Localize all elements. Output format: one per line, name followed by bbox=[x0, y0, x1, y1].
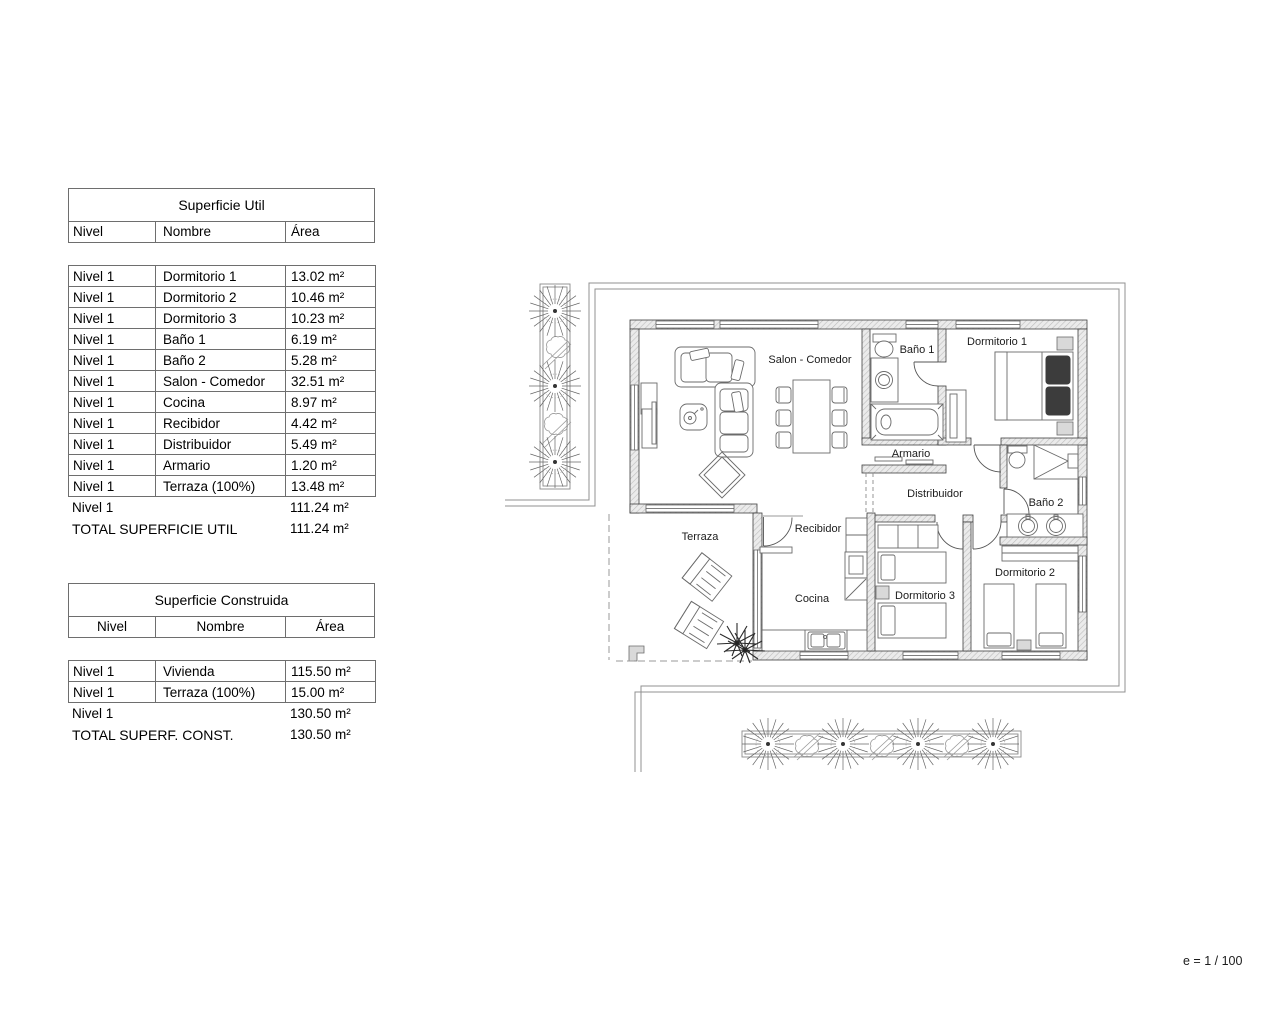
plan-sheet: Superficie Util Nivel Nombre Área Nivel … bbox=[0, 0, 1280, 1024]
label-cocina: Cocina bbox=[795, 593, 830, 605]
label-dormitorio3: Dormitorio 3 bbox=[895, 590, 955, 602]
hedge-left bbox=[529, 284, 581, 489]
bedroom3-furniture bbox=[876, 525, 946, 638]
single-bed bbox=[984, 584, 1014, 648]
terrace-chair bbox=[682, 553, 732, 602]
tree-icon bbox=[529, 285, 581, 337]
dining-set bbox=[776, 380, 847, 453]
rug bbox=[699, 452, 745, 498]
hall-shelf bbox=[760, 547, 792, 553]
label-terraza: Terraza bbox=[682, 531, 720, 543]
wardrobe bbox=[1002, 546, 1078, 561]
double-bed bbox=[946, 337, 1073, 442]
label-recibidor: Recibidor bbox=[795, 523, 842, 535]
terrace-pillar bbox=[629, 646, 644, 661]
shrub-icon bbox=[545, 413, 568, 434]
terrace-chair bbox=[674, 601, 723, 648]
wardrobe bbox=[878, 525, 938, 548]
floor-plan: Salon - Comedor Baño 1 Dormitorio 1 Arma… bbox=[0, 0, 1280, 1024]
shrub-icon bbox=[796, 735, 819, 756]
tree-icon bbox=[892, 718, 944, 770]
single-bed bbox=[1036, 584, 1066, 648]
label-dormitorio2: Dormitorio 2 bbox=[995, 567, 1055, 579]
label-distribuidor: Distribuidor bbox=[907, 488, 963, 500]
label-dormitorio1: Dormitorio 1 bbox=[967, 336, 1027, 348]
nightstand bbox=[1057, 337, 1073, 350]
shrub-icon bbox=[946, 735, 969, 756]
nightstand bbox=[1057, 422, 1073, 435]
label-salon: Salon - Comedor bbox=[768, 354, 851, 366]
sofa bbox=[675, 347, 755, 457]
bedroom2-furniture bbox=[984, 546, 1078, 650]
single-bed bbox=[878, 603, 946, 638]
tree-icon bbox=[742, 718, 794, 770]
tree-icon bbox=[529, 360, 581, 412]
terrace-furniture bbox=[674, 553, 765, 663]
scale-label: e = 1 / 100 bbox=[1183, 954, 1242, 968]
label-bano1: Baño 1 bbox=[900, 344, 935, 356]
tree-icon bbox=[967, 718, 1019, 770]
shrub-icon bbox=[547, 336, 570, 357]
wardrobe bbox=[946, 390, 966, 442]
nightstand bbox=[1017, 640, 1031, 650]
shower bbox=[1034, 445, 1078, 479]
tv-unit bbox=[641, 383, 657, 448]
bathroom2-fixtures bbox=[1007, 445, 1083, 537]
nightstand bbox=[876, 586, 889, 599]
label-armario: Armario bbox=[892, 448, 931, 460]
shrub-icon bbox=[871, 735, 894, 756]
kitchen-fixtures bbox=[760, 518, 867, 651]
label-bano2: Baño 2 bbox=[1029, 497, 1064, 509]
hedge-bottom bbox=[742, 718, 1021, 770]
tree-icon bbox=[817, 718, 869, 770]
single-bed bbox=[878, 552, 946, 583]
coffee-table bbox=[680, 404, 707, 430]
tree-icon bbox=[529, 436, 581, 488]
